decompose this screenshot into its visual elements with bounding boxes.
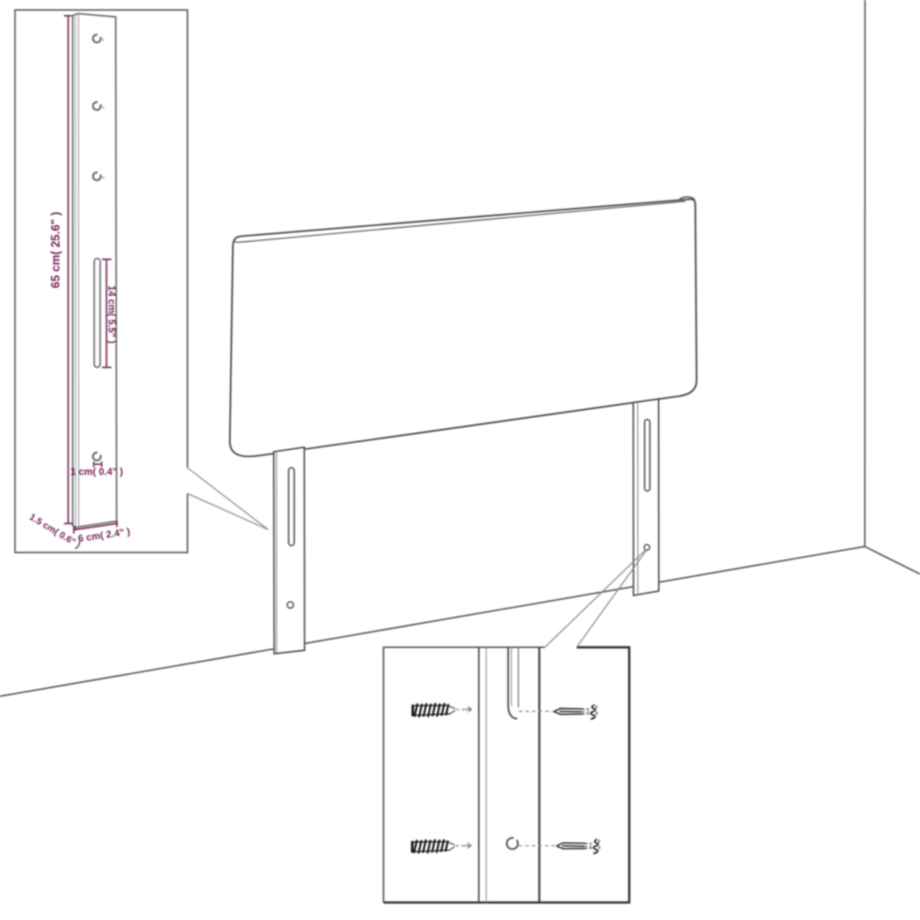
- svg-text:14 cm( 5.5" ): 14 cm( 5.5" ): [106, 285, 117, 343]
- svg-text:1 cm( 0.4" ): 1 cm( 0.4" ): [70, 467, 123, 478]
- svg-text:6 cm( 2.4" ): 6 cm( 2.4" ): [77, 527, 131, 545]
- svg-text:65 cm( 25.6" ): 65 cm( 25.6" ): [49, 212, 63, 288]
